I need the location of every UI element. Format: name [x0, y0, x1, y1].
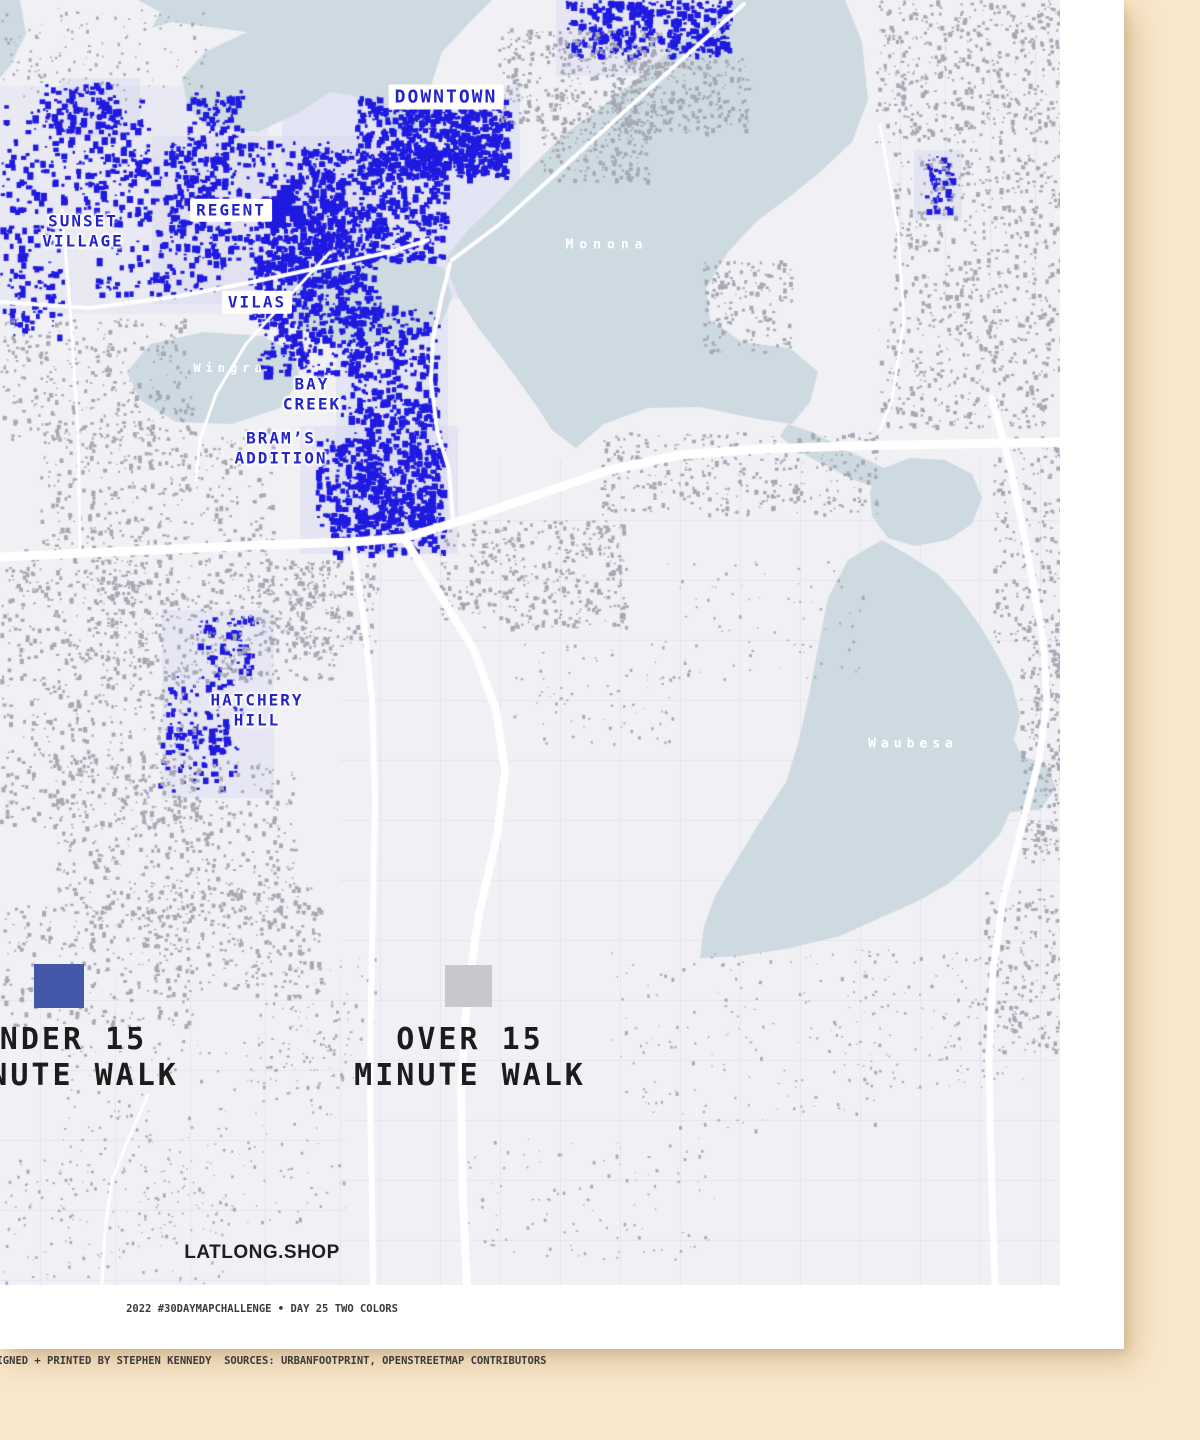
source-line: DESIGNED + PRINTED BY STEPHEN KENNEDY SO…	[0, 1354, 546, 1368]
legend-label-under-15-minute-walk: UNDER 15MINUTE WALK	[0, 1022, 179, 1094]
map-poster: DOWNTOWNSUNSETVILLAGEREGENTVILASBAYCREEK…	[0, 0, 1124, 1349]
legend-line: UNDER 15	[0, 1022, 147, 1057]
legend-swatch-over-15-minute-walk	[445, 965, 492, 1007]
credit-line: 2022 #30DAYMAPCHALLENGE • DAY 25 TWO COL…	[0, 1302, 546, 1316]
poster-credits: LATLONG.SHOP 2022 #30DAYMAPCHALLENGE • D…	[0, 1204, 546, 1406]
brand-title: LATLONG.SHOP	[0, 1242, 546, 1264]
map-viewport: DOWNTOWNSUNSETVILLAGEREGENTVILASBAYCREEK…	[0, 0, 1060, 1285]
legend-swatch-under-15-minute-walk	[34, 964, 84, 1008]
legend-label-over-15-minute-walk: OVER 15MINUTE WALK	[354, 1022, 586, 1094]
legend-line: OVER 15	[396, 1022, 543, 1057]
legend-line: MINUTE WALK	[354, 1058, 586, 1093]
scene: DOWNTOWNSUNSETVILLAGEREGENTVILASBAYCREEK…	[0, 0, 1200, 1440]
legend-line: MINUTE WALK	[0, 1058, 179, 1093]
